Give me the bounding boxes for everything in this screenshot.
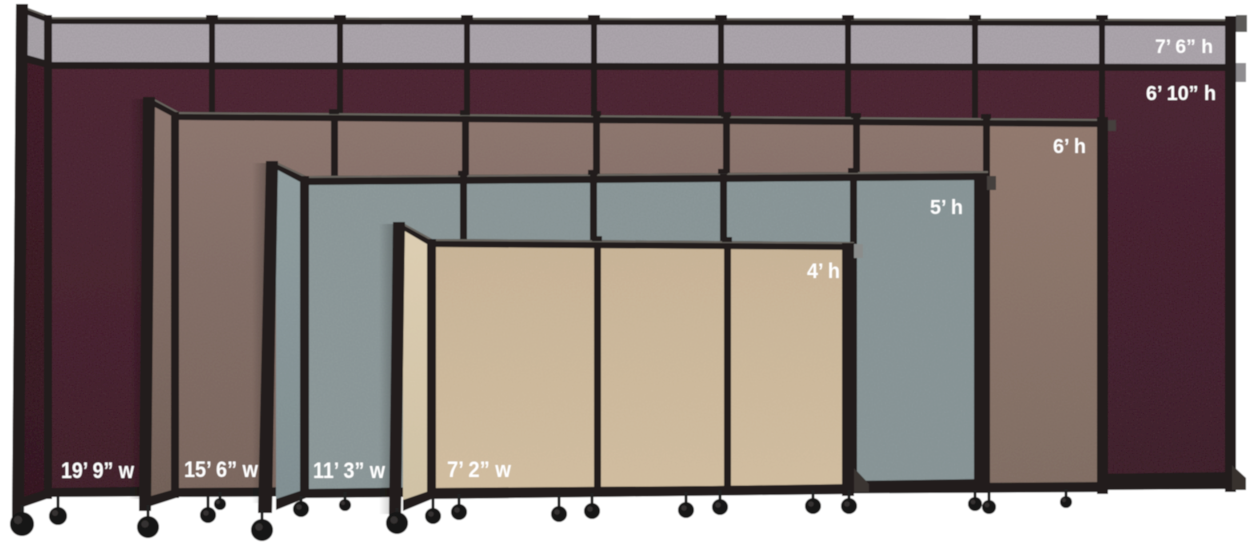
svg-text:15’ 6” w: 15’ 6” w (184, 457, 259, 482)
svg-text:11’ 3” w: 11’ 3” w (313, 458, 386, 483)
svg-text:4’ h: 4’ h (807, 260, 840, 283)
svg-text:6’ h: 6’ h (1053, 136, 1086, 158)
svg-text:6’ 10” h: 6’ 10” h (1146, 83, 1216, 105)
svg-text:7’ 6” h: 7’ 6” h (1155, 37, 1213, 58)
svg-text:19’ 9” w: 19’ 9” w (61, 458, 135, 483)
svg-text:5’ h: 5’ h (930, 197, 963, 219)
svg-text:7’ 2” w: 7’ 2” w (447, 457, 512, 482)
